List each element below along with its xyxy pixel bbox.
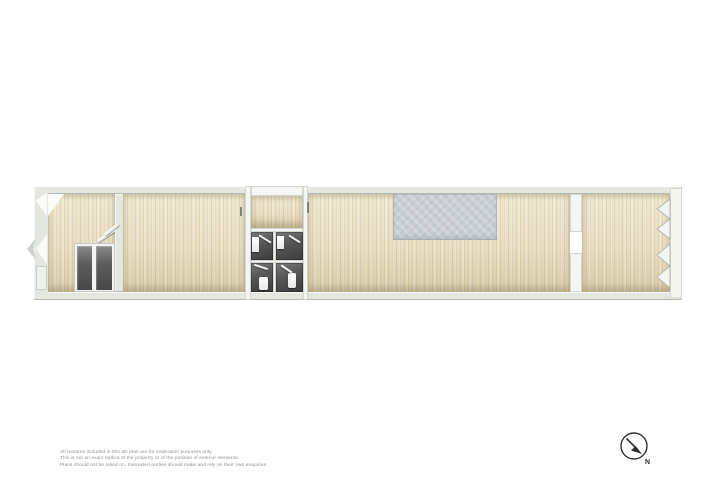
disclaimer-line-3: Plans should not be relied on. Intereste… <box>60 463 268 469</box>
wall-stub-top <box>570 194 582 232</box>
hallway-top-wall <box>251 186 303 196</box>
window-left-bottom <box>36 266 47 290</box>
wall-stub-bottom <box>570 253 582 292</box>
compass: N <box>614 428 658 472</box>
compass-north-label: N <box>645 459 650 466</box>
wardrobe-left <box>77 246 92 290</box>
floor-plan-3d <box>0 0 712 480</box>
hallway-floor <box>251 196 303 228</box>
page: All features included in this 3D plan ar… <box>0 0 712 480</box>
bedroom2-floor <box>123 194 245 292</box>
kitchen-floor-area <box>393 194 497 240</box>
bifold-door-top-icon <box>654 197 672 241</box>
wall-bed1-bed2 <box>115 194 123 292</box>
wardrobe-right <box>96 246 112 290</box>
outer-wall-bottom <box>40 292 682 300</box>
toilet-wc2 <box>288 273 296 288</box>
wet-area-wall-horizontal <box>251 260 303 263</box>
toilet-wc1 <box>259 277 268 290</box>
disclaimer-line-2: This is not an exact replica of the prop… <box>60 456 268 462</box>
disclaimer-text: All features included in this 3D plan ar… <box>60 450 268 469</box>
vanity-bathroom2 <box>277 236 284 249</box>
vanity-bathroom1 <box>252 237 259 252</box>
door-jamb-bedroom2 <box>240 207 242 216</box>
bifold-door-bottom-icon <box>654 242 672 290</box>
outer-wall-top <box>40 186 682 194</box>
door-jamb-living <box>307 202 309 213</box>
north-arrow-icon <box>614 428 658 472</box>
